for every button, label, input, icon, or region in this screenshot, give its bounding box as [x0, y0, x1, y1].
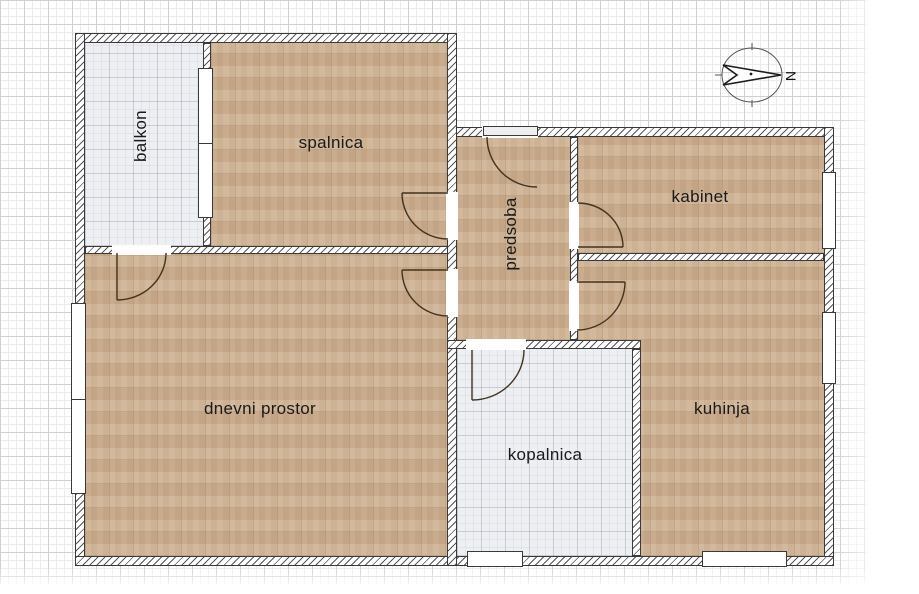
room-label-spalnica: spalnica: [299, 133, 364, 153]
room-label-dnevni-prostor: dnevni prostor: [204, 399, 316, 419]
room-label-balkon: balkon: [131, 110, 151, 162]
spalnica-door-arc: [402, 193, 448, 239]
entrance-door-arc: [487, 137, 537, 187]
room-label-kuhinja: kuhinja: [694, 399, 750, 419]
north-arrow-pointer: [723, 65, 781, 85]
balkon-door-arc: [117, 253, 166, 300]
kuhinja-door-arc: [577, 282, 625, 330]
floor-plan-canvas: balkon spalnica predsoba kabinet dnevni …: [0, 0, 919, 594]
kabinet-door-arc: [578, 203, 623, 247]
kopalnica-door-arc: [472, 350, 524, 400]
dnevni-door-arc: [402, 270, 448, 316]
room-label-predsoba: predsoba: [501, 197, 521, 270]
room-label-kabinet: kabinet: [672, 187, 729, 207]
room-label-kopalnica: kopalnica: [508, 445, 583, 465]
north-compass-icon: N: [700, 35, 810, 117]
north-letter: N: [783, 71, 799, 81]
